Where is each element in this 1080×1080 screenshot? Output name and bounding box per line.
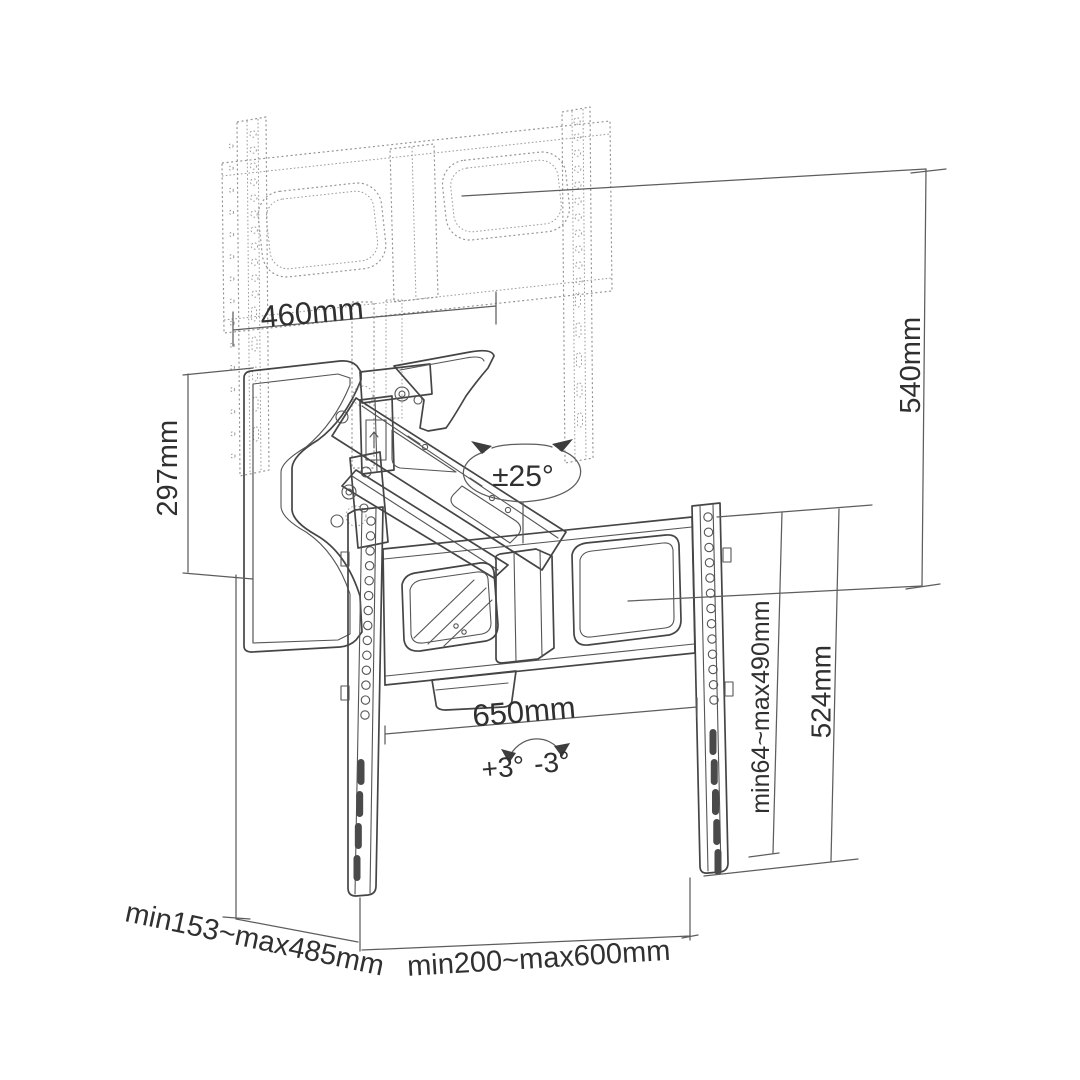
label-swivel-angle: ±25° (468, 461, 578, 493)
left-rail-slots (354, 759, 365, 881)
solid-bracket-leader-line (628, 586, 922, 601)
ghost-tv-bracket (222, 107, 612, 476)
dim-vesa-height-and-bracket-height (704, 505, 872, 876)
ghost-right-rail-slots (576, 293, 583, 427)
ghost-left-outer-holes (229, 144, 235, 458)
diagram-page: 460mm 540mm 297mm ±25° 650mm +3° -3° min… (0, 0, 1080, 1080)
ghost-bracket-leader-line (462, 169, 926, 196)
right-rail-holes (704, 513, 718, 704)
ghost-left-rail-holes (250, 131, 258, 297)
label-bracket-height: 524mm (806, 622, 835, 762)
swivel-arrow-right-icon (552, 439, 573, 452)
upper-mount-assembly (360, 351, 494, 431)
label-vesa-height-range: min64~max490mm (748, 587, 774, 827)
dim-left-height (183, 368, 253, 579)
swivel-arrow-left-icon (471, 441, 492, 454)
label-tilt-down: -3° (516, 745, 588, 780)
label-left-height: 297mm (153, 398, 183, 538)
label-right-height: 540mm (896, 295, 926, 435)
ghost-right-rail-holes (574, 118, 582, 284)
